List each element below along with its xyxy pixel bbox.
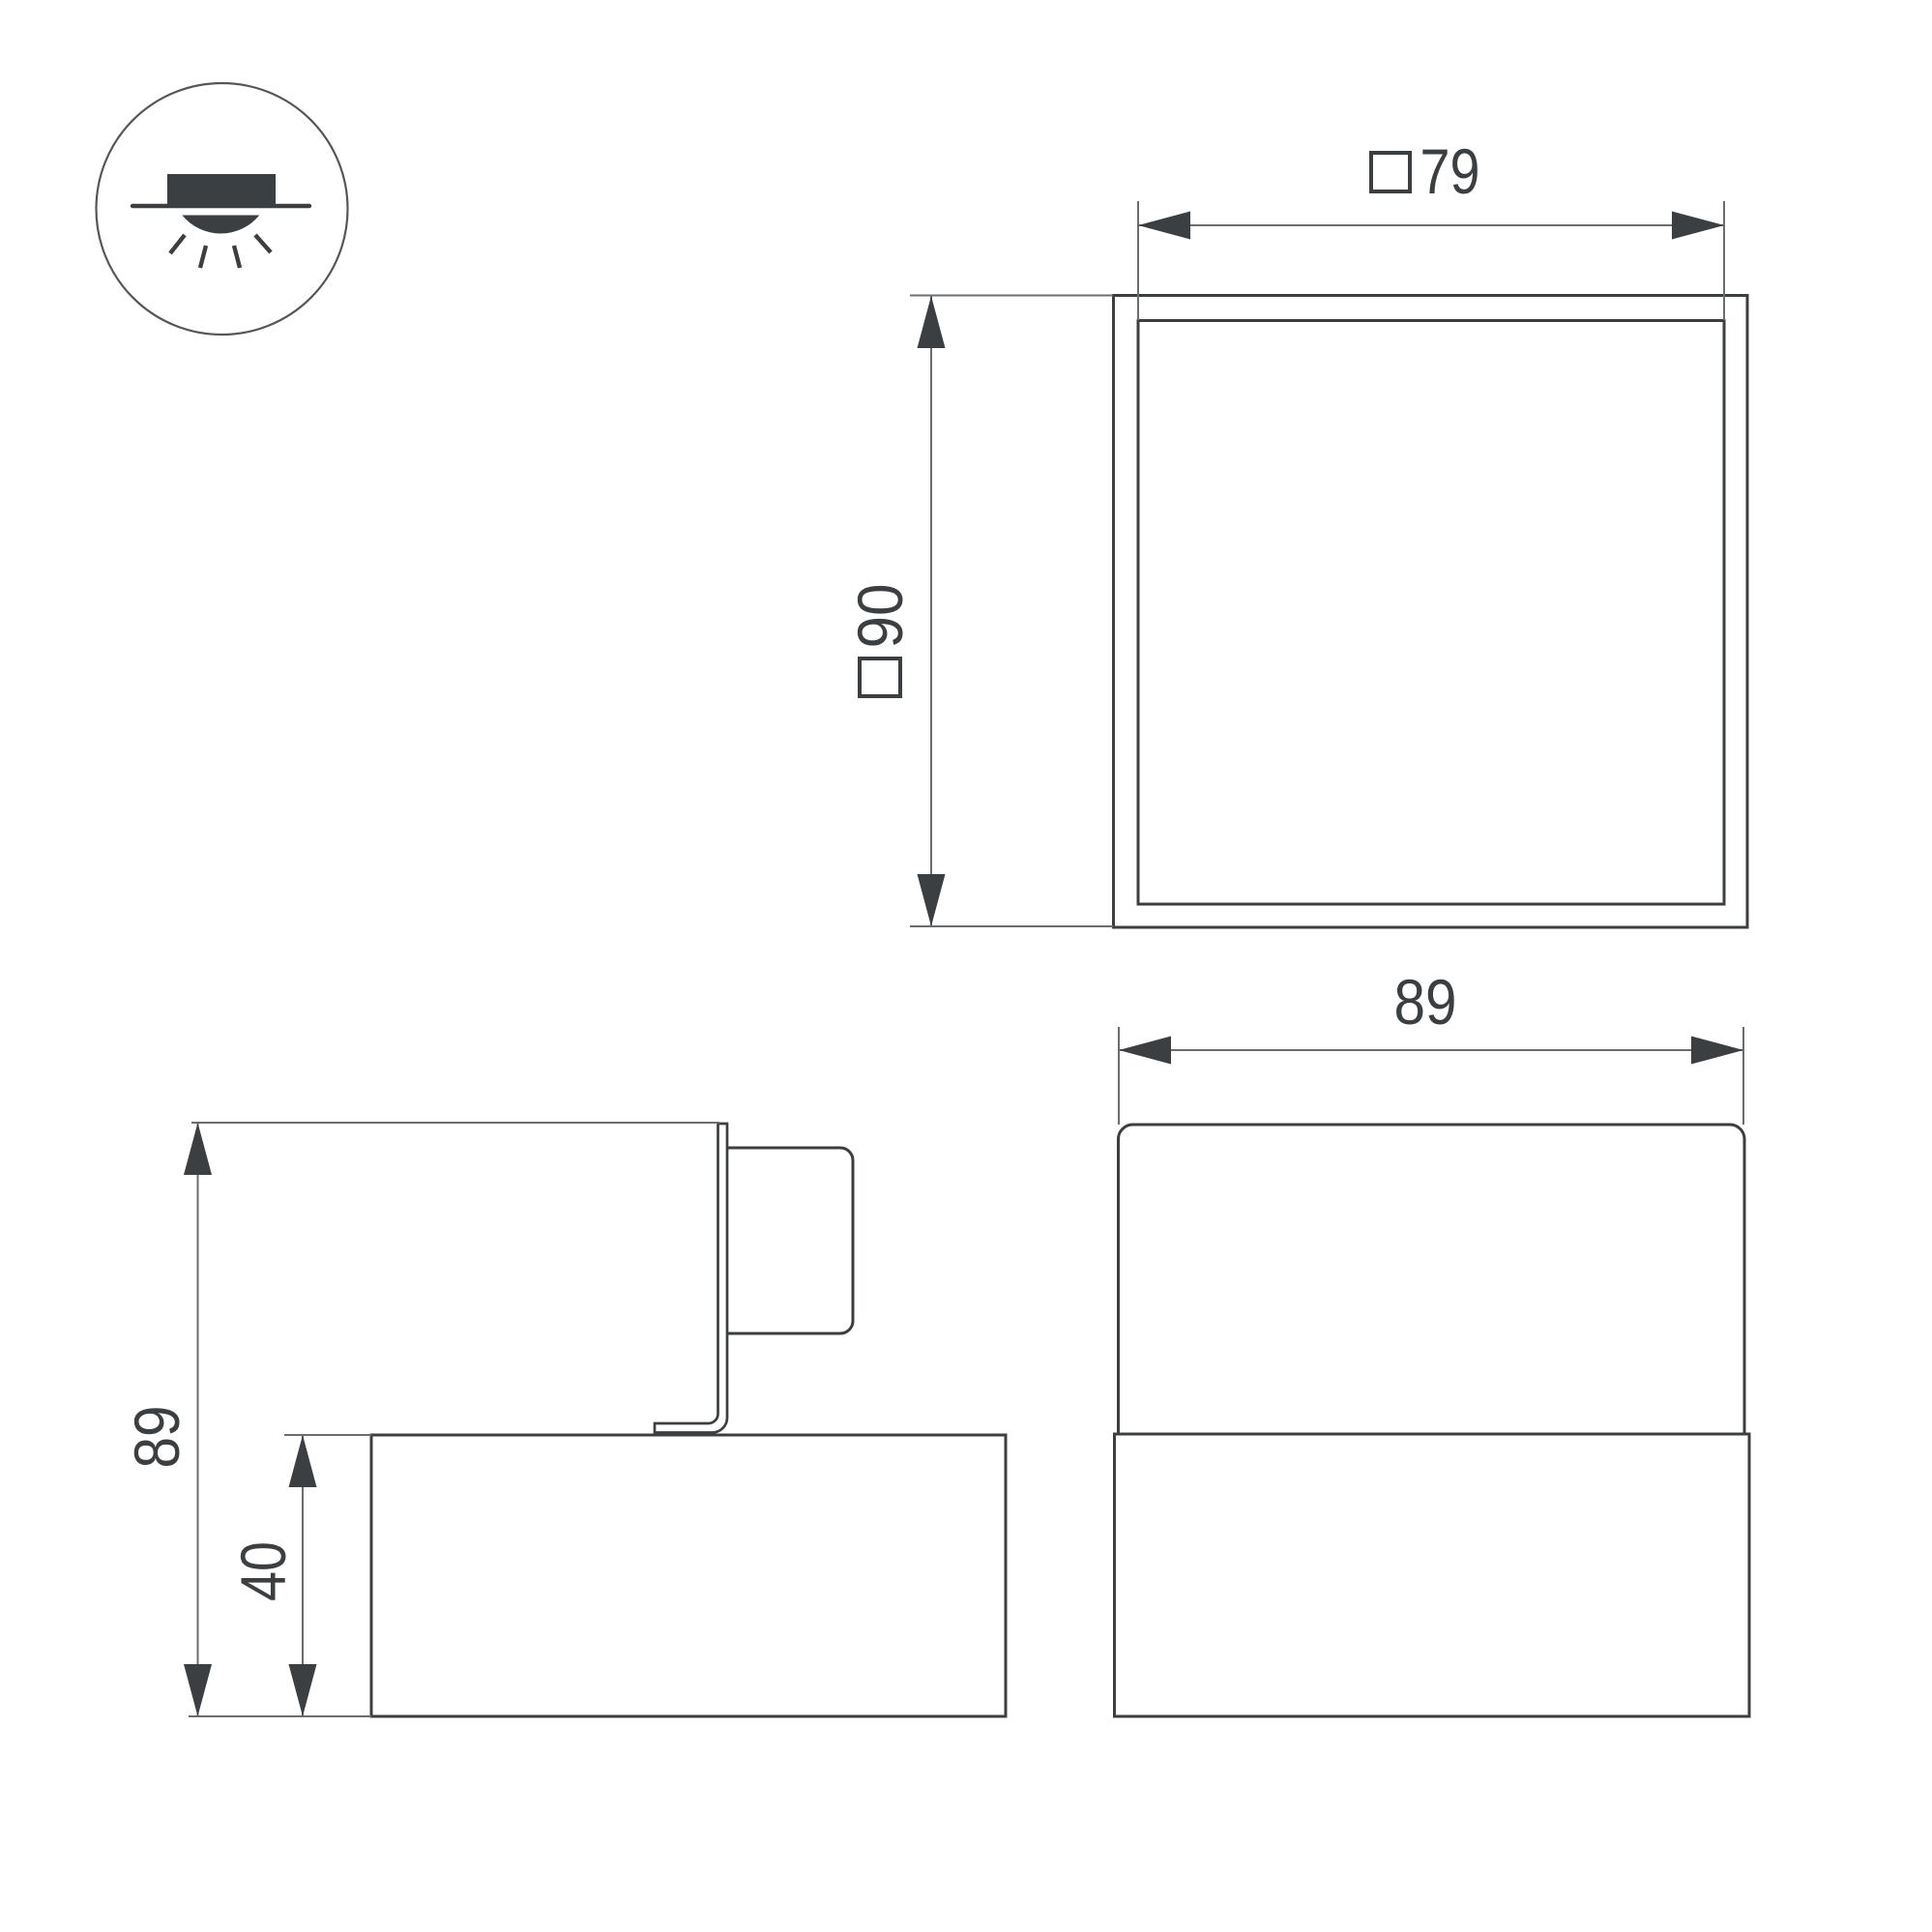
- svg-text:40: 40: [227, 1541, 299, 1601]
- svg-text:89: 89: [121, 1406, 192, 1469]
- svg-text:79: 79: [1420, 135, 1480, 207]
- svg-text:89: 89: [1394, 966, 1457, 1038]
- svg-text:90: 90: [844, 584, 916, 649]
